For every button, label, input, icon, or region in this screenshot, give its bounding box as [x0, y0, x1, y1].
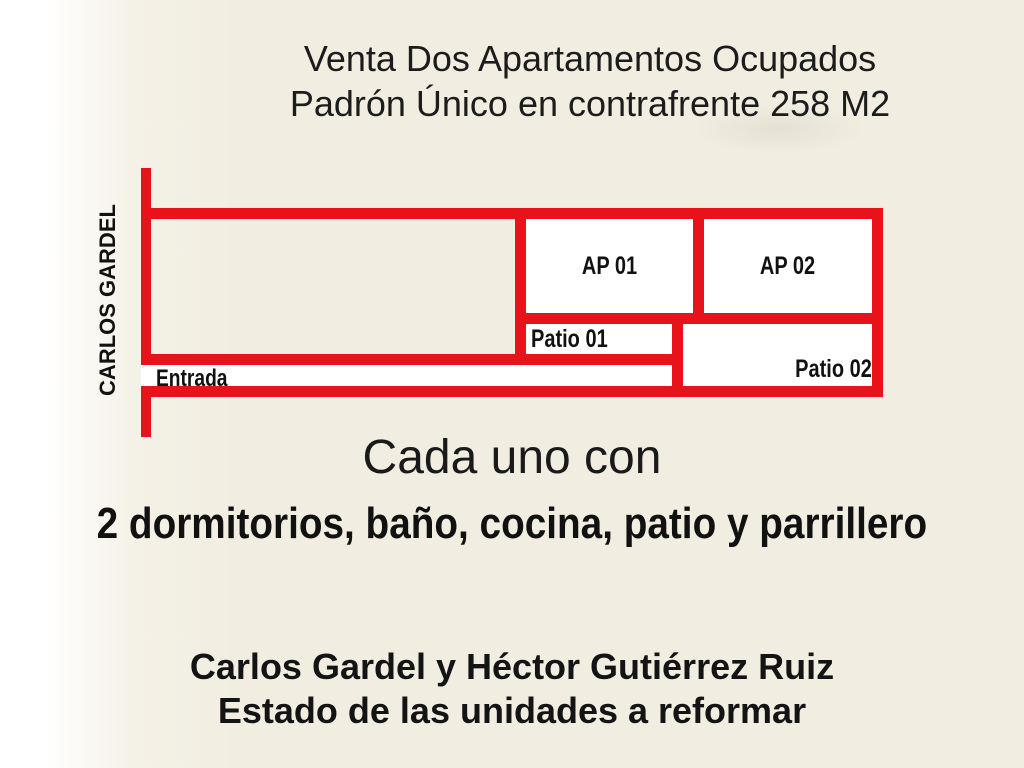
ap-bottom-line: [515, 313, 883, 324]
street-name-label: CARLOS GARDEL: [95, 200, 121, 400]
title-line-1: Venta Dos Apartamentos Ocupados: [168, 36, 1012, 81]
lot-right-divider: [515, 208, 526, 365]
features-text: 2 dormitorios, baño, cocina, patio y par…: [97, 500, 928, 548]
ap02-label: AP 02: [760, 252, 815, 281]
slide: { "slide": { "title_line1": "Venta Dos A…: [0, 0, 1024, 768]
features-line: 2 dormitorios, baño, cocina, patio y par…: [0, 500, 1024, 548]
footer-line-1: Carlos Gardel y Héctor Gutiérrez Ruiz: [0, 645, 1024, 689]
patio01-label-box: Patio 01: [526, 324, 677, 354]
ap01-label: AP 01: [582, 252, 637, 281]
ap02-label-box: AP 02: [704, 219, 872, 313]
ap-divider: [693, 208, 704, 324]
entrance-label-box: Entrada: [156, 363, 356, 390]
footer-block: Carlos Gardel y Héctor Gutiérrez Ruiz Es…: [0, 645, 1024, 733]
patio01-label: Patio 01: [531, 325, 608, 354]
entrance-label: Entrada: [156, 365, 227, 393]
slide-title: Venta Dos Apartamentos Ocupados Padrón Ú…: [168, 36, 1012, 126]
title-line-2: Padrón Único en contrafrente 258 M2: [168, 81, 1012, 126]
street-line-upper: [141, 168, 151, 365]
heading-text: Cada uno con: [0, 432, 1024, 484]
ap01-label-box: AP 01: [526, 219, 693, 313]
footer-line-2: Estado de las unidades a reformar: [0, 689, 1024, 733]
patio02-label-box: Patio 02: [683, 324, 877, 385]
patio02-label: Patio 02: [795, 355, 872, 384]
plan-top-line: [141, 208, 883, 219]
